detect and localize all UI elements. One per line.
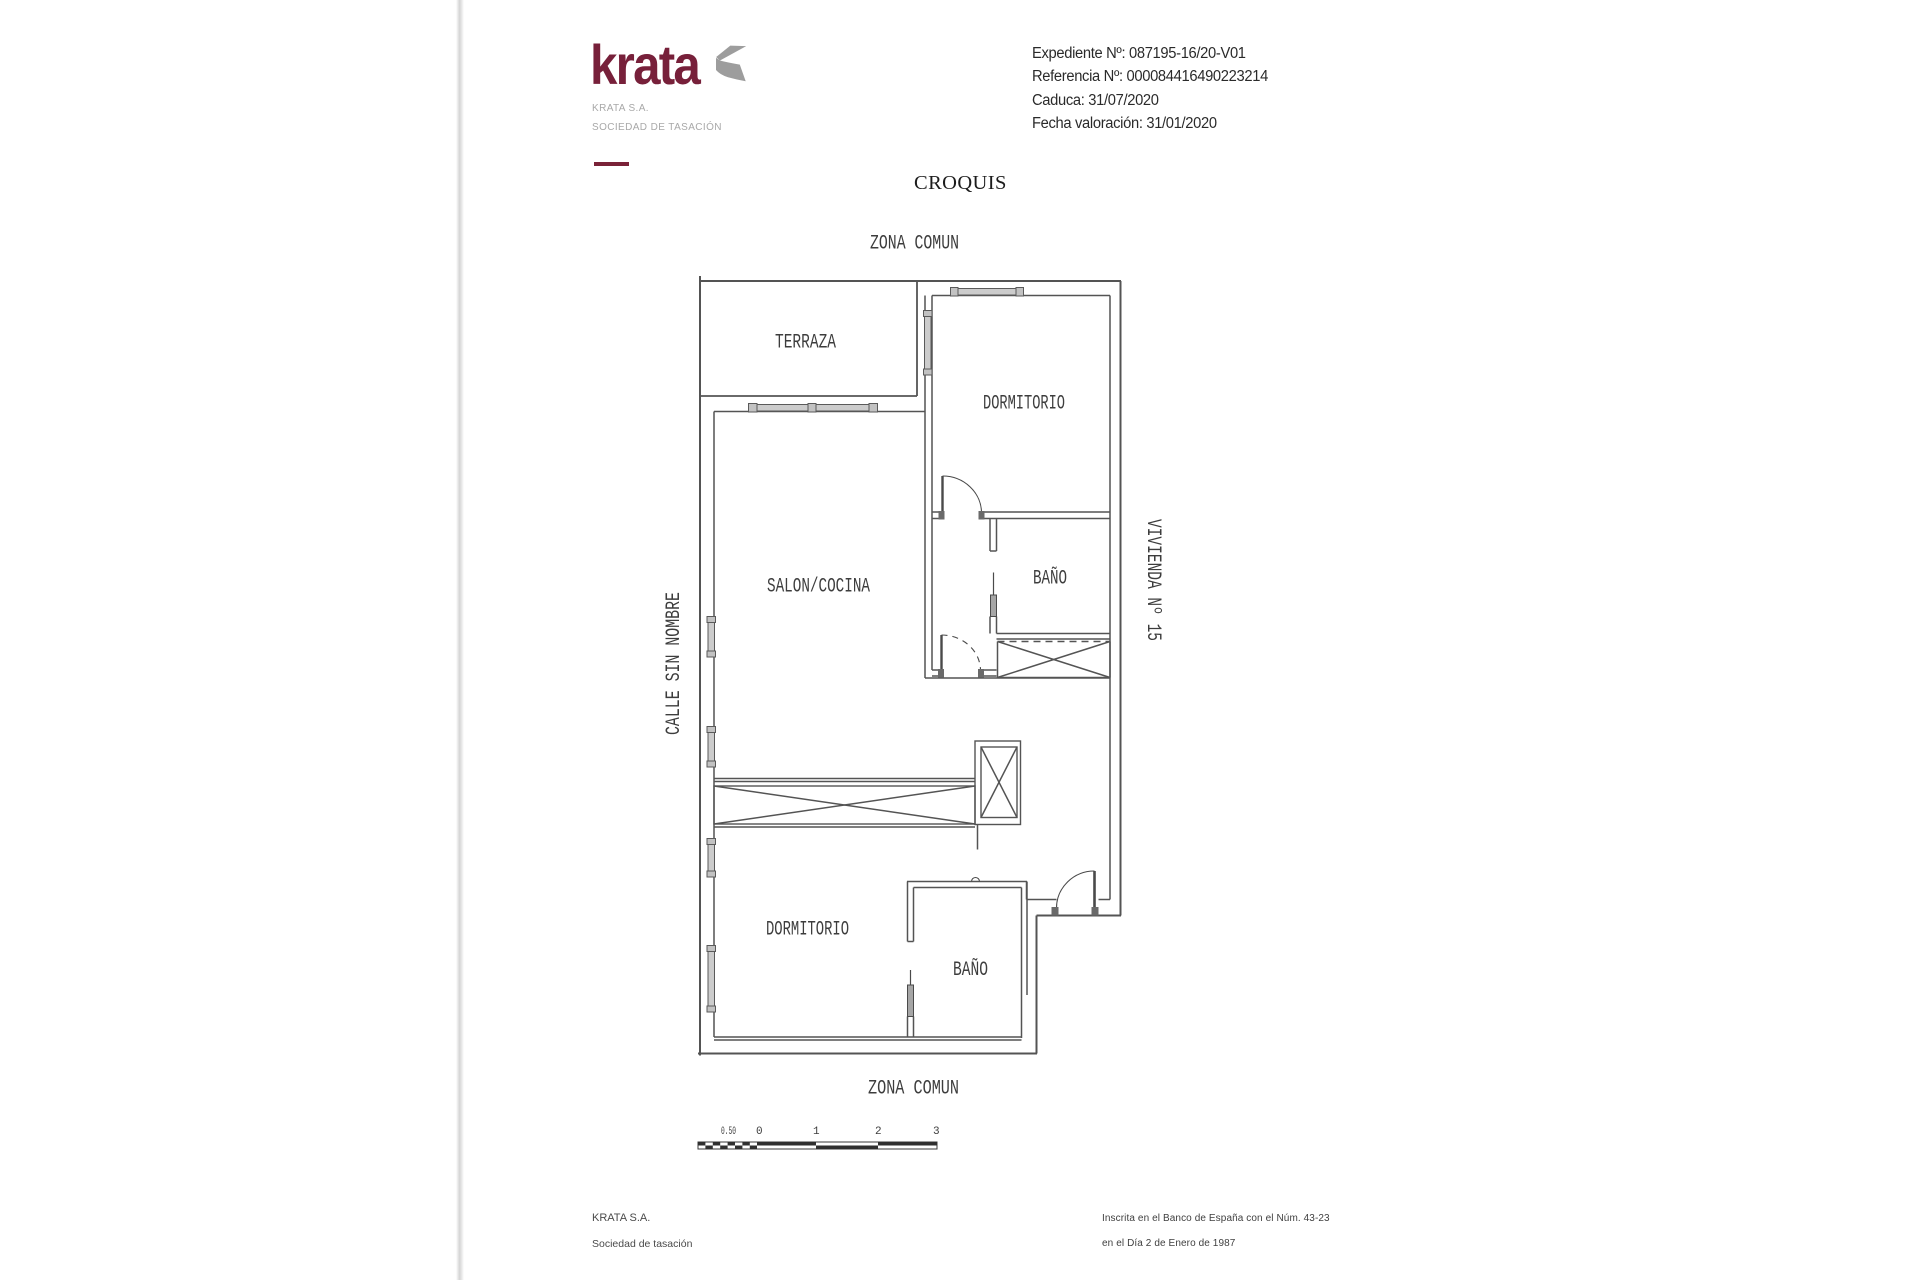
svg-text:3: 3 xyxy=(933,1126,940,1138)
svg-text:TERRAZA: TERRAZA xyxy=(775,332,836,355)
svg-text:ZONA COMUN: ZONA COMUN xyxy=(870,233,959,256)
svg-text:2: 2 xyxy=(875,1126,882,1138)
svg-text:ZONA COMUN: ZONA COMUN xyxy=(868,1078,959,1101)
svg-text:1: 1 xyxy=(813,1126,820,1138)
svg-text:CALLE SIN NOMBRE: CALLE SIN NOMBRE xyxy=(663,592,686,735)
svg-text:SALON/COCINA: SALON/COCINA xyxy=(767,576,870,599)
svg-text:0: 0 xyxy=(756,1126,763,1138)
svg-text:DORMITORIO: DORMITORIO xyxy=(983,393,1065,416)
svg-text:VIVIENDA Nº 15: VIVIENDA Nº 15 xyxy=(1141,519,1164,641)
svg-text:0.50: 0.50 xyxy=(721,1126,736,1138)
svg-text:BAÑO: BAÑO xyxy=(953,957,988,982)
svg-text:DORMITORIO: DORMITORIO xyxy=(766,919,849,942)
svg-text:BAÑO: BAÑO xyxy=(1033,566,1067,591)
